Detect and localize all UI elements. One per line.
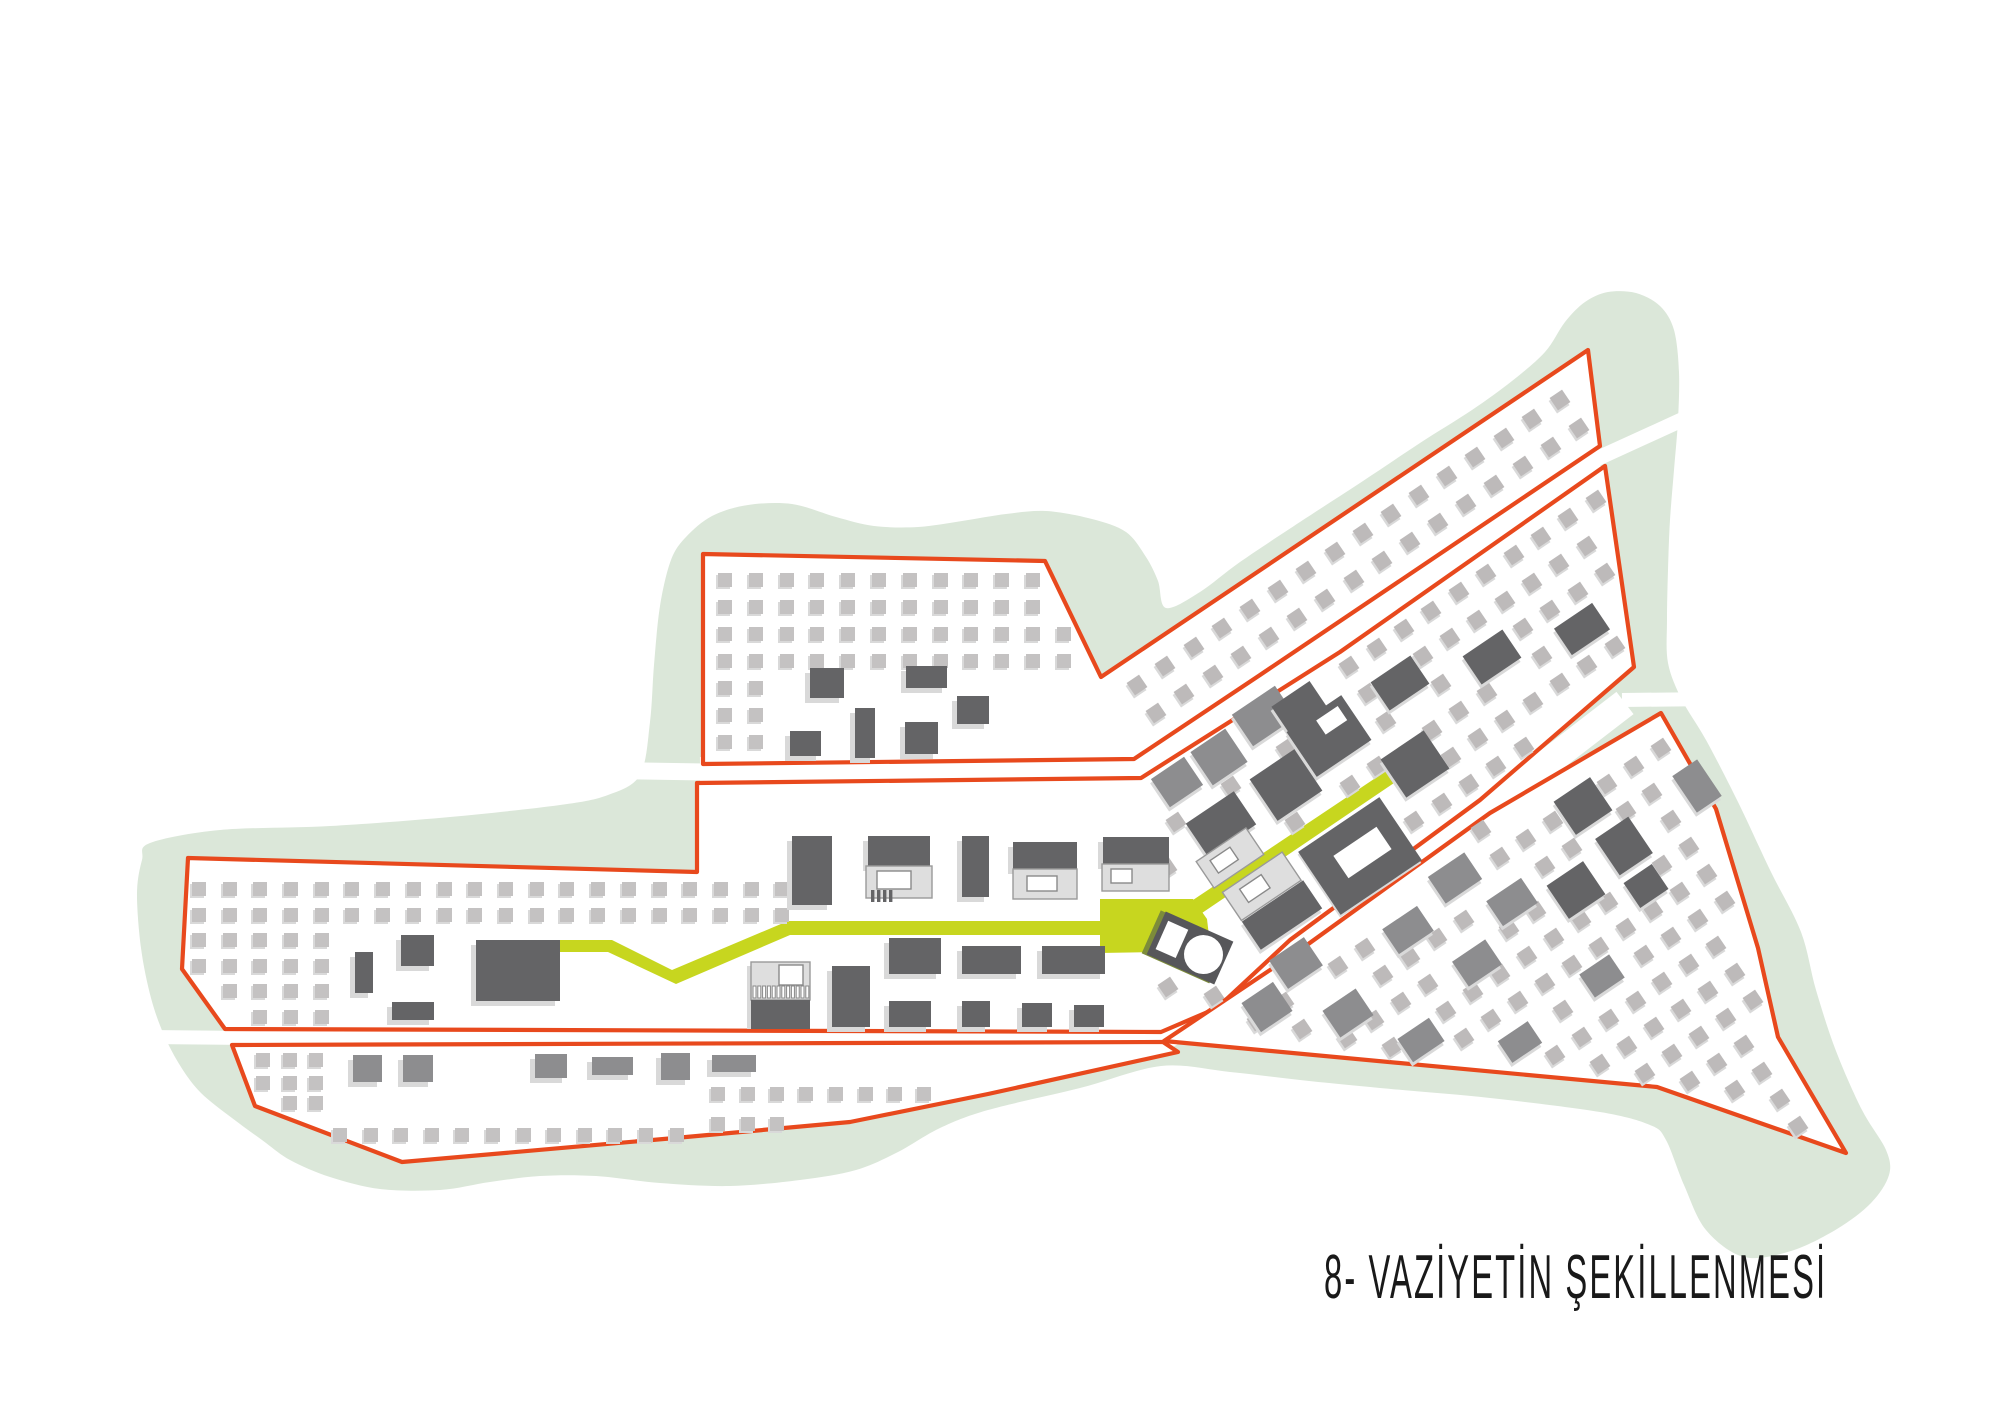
svg-text:8- VAZİYETİN ŞEKİLLENMESİ: 8- VAZİYETİN ŞEKİLLENMESİ: [1324, 1242, 1827, 1312]
